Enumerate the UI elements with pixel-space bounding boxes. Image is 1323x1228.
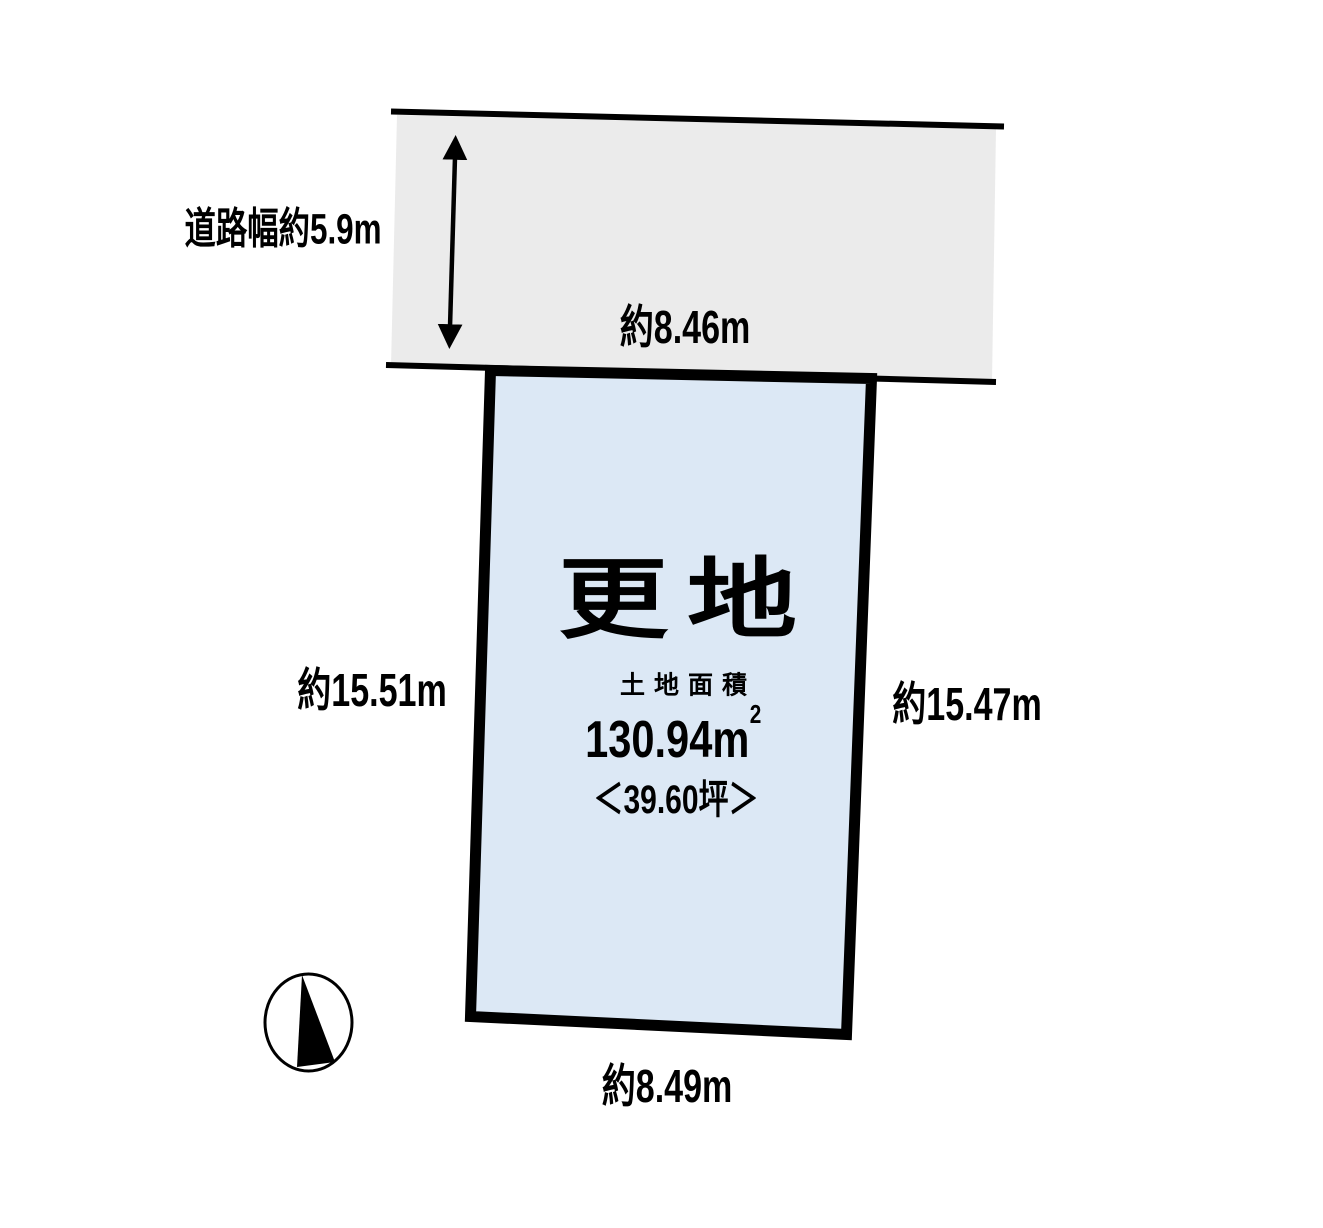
land-area-value: 130.94m2 [585,714,761,766]
left-side-dimension-label: 約15.51m [297,667,446,713]
right-side-dimension-label: 約15.47m [892,681,1041,727]
plot-outline [471,371,872,1035]
land-area-number: 130.94m [585,711,749,769]
tsubo-area-label: ＜39.60坪＞ [593,780,758,820]
road-width-label: 道路幅約5.9m [184,209,381,252]
land-area-caption: 土地面積 [620,674,756,699]
square-meter-superscript: 2 [750,699,762,729]
bottom-side-dimension-label: 約8.49m [602,1063,733,1109]
north-arrow-compass-icon [265,974,352,1071]
road-frontage-label: 約8.46m [620,304,751,350]
plot-status-label: 更地 [558,556,816,644]
land-plot-diagram: 道路幅約5.9m 約8.46m 更地 土地面積 130.94m2 ＜39.60坪… [0,0,1323,1228]
